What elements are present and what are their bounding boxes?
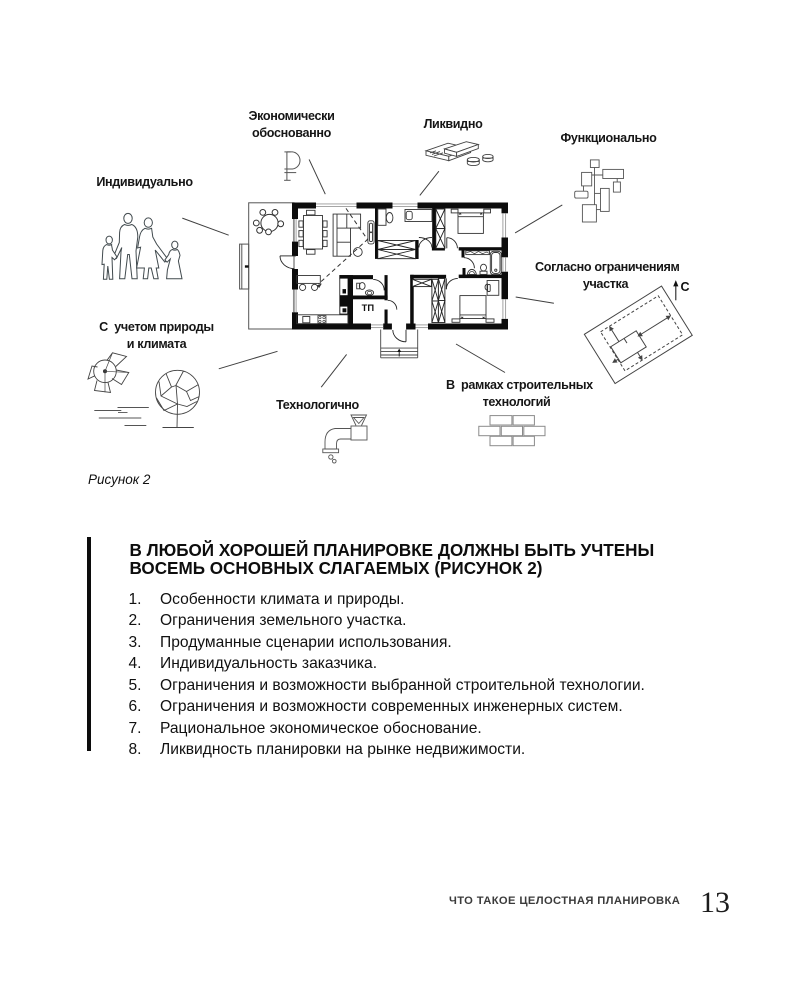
svg-text:С: С — [681, 280, 690, 294]
svg-text:ТП: ТП — [362, 302, 375, 313]
